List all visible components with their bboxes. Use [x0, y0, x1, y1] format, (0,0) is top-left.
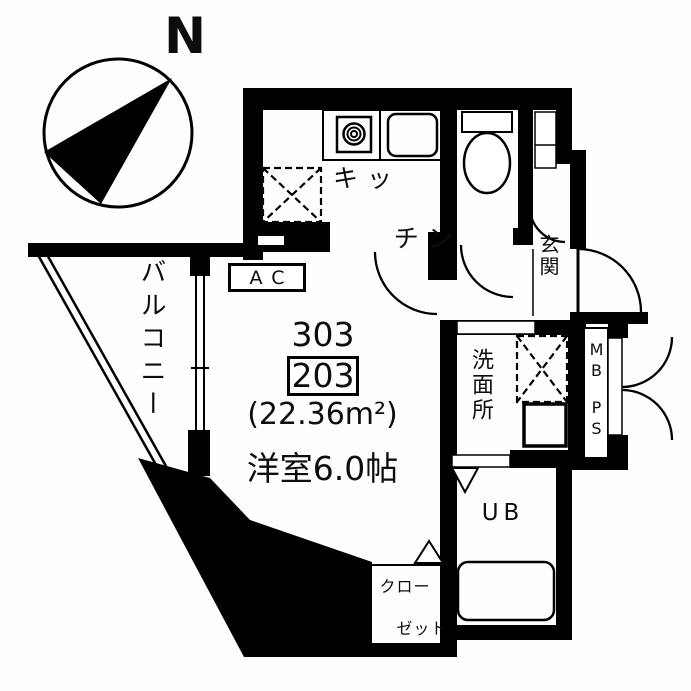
kitchen-label-line1: キッ	[333, 164, 401, 193]
burner-ring-inner	[351, 131, 357, 137]
unit-bath-label: UB	[472, 500, 534, 526]
mbps-jamb-top	[608, 322, 628, 338]
wall-outer-right-upper	[556, 88, 572, 150]
wall-ub-bottom	[440, 625, 572, 640]
toilet-door-arc	[461, 245, 513, 297]
floor-plan-page: N キッ チン 玄関 バルコニー 洗面所 MB PS UB クロー ゼット AC…	[0, 0, 691, 691]
wall-entrance-right	[570, 164, 586, 249]
closet-label-line1: クロー	[379, 577, 430, 596]
mbps-lower-door-arc	[622, 390, 672, 440]
bathtub-icon	[458, 562, 554, 620]
closet-label: クロー ゼット	[372, 577, 438, 660]
burner-ring-mid	[348, 128, 361, 141]
kitchen-label: キッ チン	[326, 164, 408, 284]
wall-right-step	[556, 150, 586, 164]
unit-number-upper: 303	[256, 316, 390, 354]
kitchen-counter	[323, 110, 443, 160]
compass-north-label: N	[155, 8, 215, 66]
mbps-upper-door-arc	[622, 337, 672, 387]
wall-ub-right	[556, 468, 572, 640]
kitchen-label-line2: チン	[394, 224, 462, 253]
compass	[44, 59, 192, 207]
washroom-sliding-door	[457, 321, 535, 334]
wall-washroom-mbps	[568, 322, 584, 470]
pipe-space-label: PS	[588, 398, 604, 440]
mbps-jamb-bottom	[608, 435, 628, 457]
entrance-label: 玄関	[538, 234, 558, 278]
wall-top	[243, 88, 572, 110]
wall-washroom-ub	[510, 450, 572, 468]
unit-number-boxed-frame: 203	[287, 356, 359, 396]
wall-balcony-top	[28, 243, 245, 257]
wall-vent-notch	[258, 236, 284, 245]
toilet	[462, 112, 512, 193]
air-conditioner-label: AC	[250, 267, 294, 289]
closet-label-line2: ゼット	[396, 619, 447, 638]
washroom-label: 洗面所	[469, 348, 491, 423]
closet-door-marker	[415, 541, 443, 563]
main-room-label: 洋室6.0帖	[220, 450, 425, 488]
shoe-cabinet	[535, 112, 556, 168]
compass-needle-icon	[44, 78, 172, 204]
floor-area-label: (22.36m²)	[230, 398, 415, 433]
toilet-tank-icon	[462, 112, 512, 132]
meter-box-label: MB	[588, 340, 604, 382]
refrigerator-space	[263, 168, 321, 222]
sink-icon	[388, 114, 437, 156]
air-conditioner-box: AC	[228, 263, 306, 292]
window-jamb-upper	[190, 254, 210, 276]
mbps-door-opening	[608, 338, 622, 435]
entry-door-arc	[578, 249, 641, 312]
wall-toilet-right	[518, 108, 533, 245]
wall-room-washroom	[440, 320, 457, 645]
washbasin-icon	[524, 404, 566, 446]
unit-number-boxed: 203	[292, 356, 355, 395]
toilet-bowl-icon	[464, 133, 510, 193]
washer-space	[517, 336, 567, 402]
balcony-label: バルコニー	[138, 258, 164, 423]
window-jamb-lower	[188, 430, 210, 476]
ub-threshold	[452, 455, 510, 467]
